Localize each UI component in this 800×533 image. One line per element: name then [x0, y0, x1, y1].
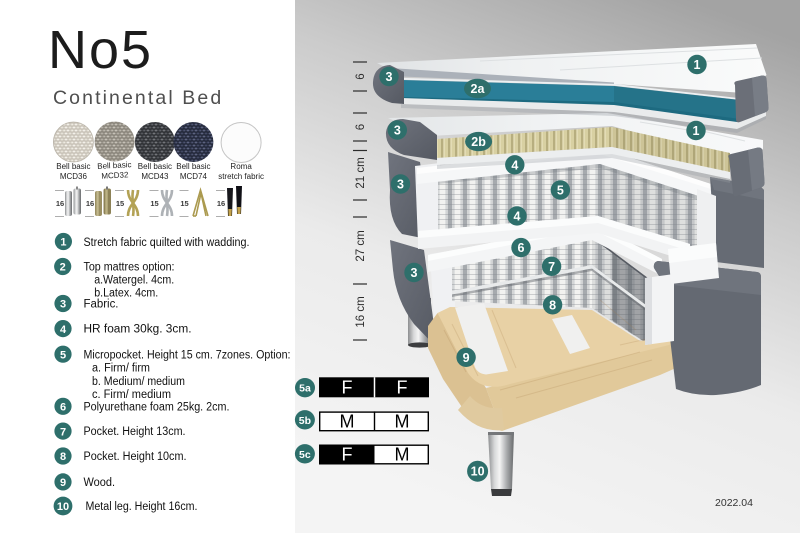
svg-text:MCD43: MCD43 [141, 172, 169, 181]
svg-text:4: 4 [60, 324, 67, 336]
svg-text:7: 7 [548, 260, 555, 274]
svg-text:16: 16 [86, 199, 94, 208]
svg-text:MCD32: MCD32 [101, 170, 129, 180]
svg-text:2: 2 [60, 262, 66, 274]
svg-text:Continental Bed: Continental Bed [53, 87, 223, 109]
svg-text:15: 15 [116, 199, 124, 208]
svg-text:Metal leg. Height 16cm.: Metal leg. Height 16cm. [86, 501, 198, 513]
svg-text:Pocket. Height 10cm.: Pocket. Height 10cm. [84, 451, 187, 463]
svg-text:c. Firm/ medium: c. Firm/ medium [92, 389, 171, 401]
svg-text:5: 5 [557, 184, 564, 198]
svg-text:b. Medium/ medium: b. Medium/ medium [92, 376, 185, 388]
svg-text:3: 3 [386, 70, 393, 84]
svg-text:F: F [397, 378, 408, 398]
svg-text:6: 6 [518, 241, 525, 255]
svg-text:stretch fabric: stretch fabric [218, 172, 264, 181]
svg-text:16: 16 [56, 199, 64, 208]
svg-text:3: 3 [411, 266, 418, 280]
svg-text:a.Watergel. 4cm.: a.Watergel. 4cm. [94, 275, 174, 287]
svg-text:a. Firm/ firm: a. Firm/ firm [92, 363, 150, 375]
svg-text:Fabric.: Fabric. [84, 299, 119, 311]
svg-text:Stretch fabric quilted with wa: Stretch fabric quilted with wadding. [84, 237, 250, 249]
svg-text:Polyurethane foam 25kg. 2cm.: Polyurethane foam 25kg. 2cm. [84, 401, 230, 413]
svg-text:2a: 2a [471, 82, 486, 96]
svg-text:Micropocket. Height 15 cm. 7zo: Micropocket. Height 15 cm. 7zones. Optio… [84, 349, 291, 361]
svg-text:7: 7 [60, 426, 66, 438]
svg-text:Bell basic: Bell basic [176, 162, 210, 171]
svg-text:16 cm: 16 cm [355, 296, 367, 327]
svg-text:M: M [395, 412, 410, 432]
svg-text:Bell basic: Bell basic [138, 162, 172, 171]
svg-text:MCD74: MCD74 [180, 172, 208, 181]
svg-text:9: 9 [60, 477, 66, 489]
svg-text:3: 3 [394, 124, 401, 138]
svg-text:16: 16 [217, 199, 225, 208]
svg-text:15: 15 [150, 199, 158, 208]
svg-text:1: 1 [60, 237, 66, 249]
svg-text:F: F [342, 378, 353, 398]
svg-text:Wood.: Wood. [84, 477, 116, 489]
svg-text:6: 6 [355, 124, 367, 130]
svg-text:21 cm: 21 cm [355, 157, 367, 188]
svg-text:3: 3 [397, 178, 404, 192]
svg-text:6: 6 [355, 73, 367, 79]
svg-text:5: 5 [60, 349, 66, 361]
svg-text:4: 4 [511, 158, 518, 172]
svg-text:M: M [340, 412, 355, 432]
svg-text:No5: No5 [48, 20, 153, 80]
svg-text:10: 10 [57, 501, 69, 513]
svg-text:Bell basic: Bell basic [97, 160, 132, 171]
svg-text:9: 9 [463, 351, 470, 365]
svg-text:Pocket. Height 13cm.: Pocket. Height 13cm. [84, 426, 186, 438]
svg-text:8: 8 [60, 451, 66, 463]
svg-text:Roma: Roma [230, 162, 252, 171]
svg-text:3: 3 [60, 299, 66, 311]
svg-text:M: M [395, 445, 410, 465]
svg-text:F: F [342, 445, 353, 465]
svg-text:1: 1 [693, 124, 700, 138]
svg-text:5a: 5a [299, 383, 311, 395]
svg-text:Top mattres option:: Top mattres option: [84, 261, 175, 273]
svg-text:27 cm: 27 cm [355, 230, 367, 261]
svg-text:8: 8 [549, 298, 556, 312]
svg-text:15: 15 [180, 199, 188, 208]
svg-text:Bell basic: Bell basic [56, 162, 90, 171]
svg-text:5b: 5b [299, 415, 311, 427]
svg-text:2022.04: 2022.04 [715, 497, 753, 509]
svg-text:10: 10 [471, 465, 485, 479]
svg-text:4: 4 [514, 209, 521, 223]
svg-text:2b: 2b [471, 135, 486, 149]
svg-text:5c: 5c [299, 449, 311, 461]
svg-text:1: 1 [694, 58, 701, 72]
svg-text:6: 6 [60, 402, 66, 414]
svg-text:MCD36: MCD36 [60, 172, 88, 181]
svg-text:HR foam 30kg. 3cm.: HR foam 30kg. 3cm. [84, 324, 192, 336]
